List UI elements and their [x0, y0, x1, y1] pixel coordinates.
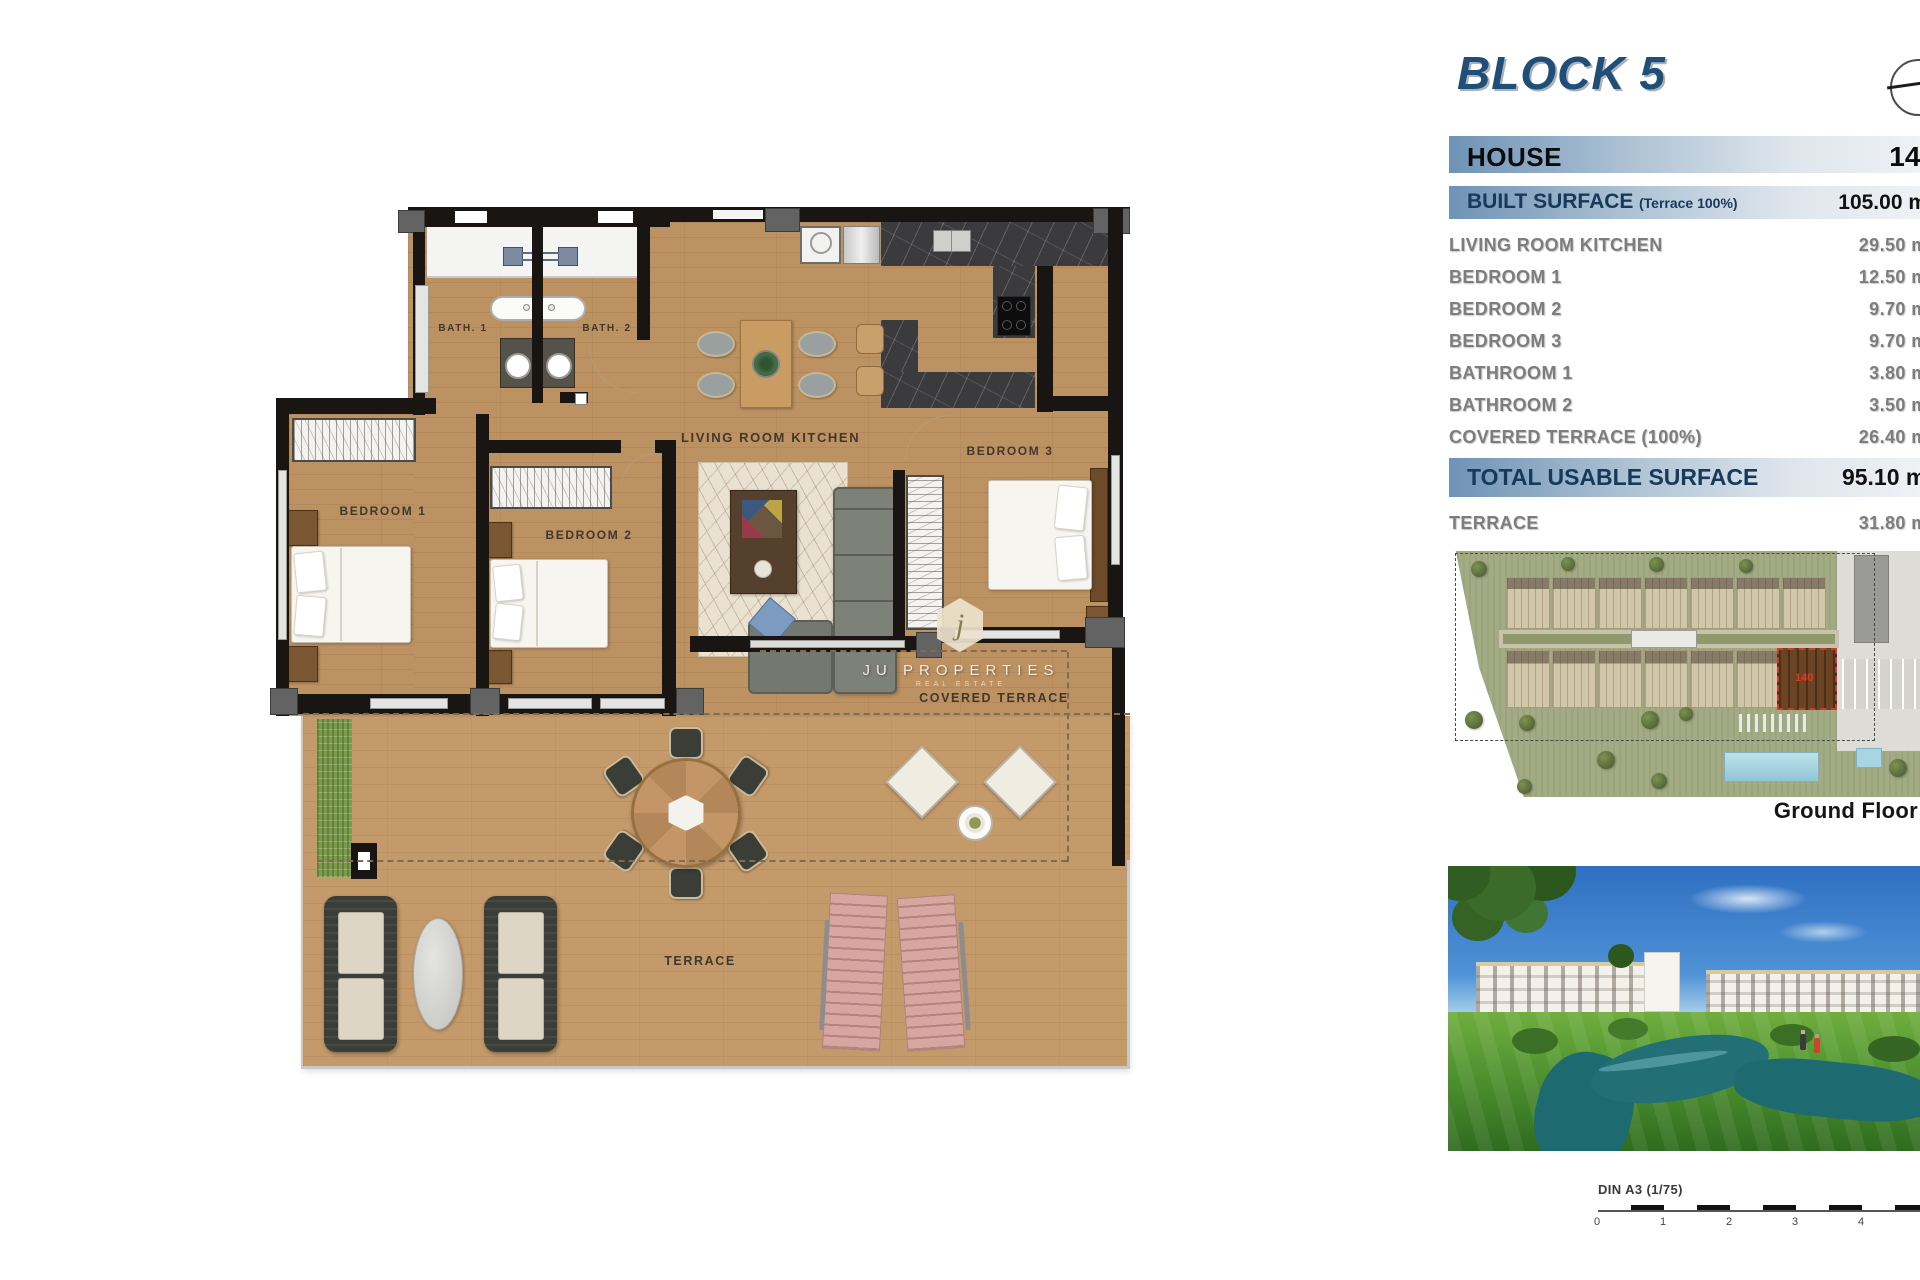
scale-bar-baseline	[1598, 1210, 1920, 1212]
sofa-cushion	[498, 978, 544, 1040]
house-header-bar: HOUSE 140	[1449, 136, 1920, 175]
scale-bar: DIN A3 (1/75) 0 1 2 3 4	[1598, 1182, 1920, 1232]
bath-counter-sink	[503, 247, 523, 266]
site-pool	[1724, 752, 1819, 782]
tree-icon	[1651, 773, 1667, 789]
garden-strip	[317, 719, 352, 877]
site-unit	[1736, 577, 1780, 629]
tub-faucet	[548, 304, 555, 311]
pillow	[1054, 535, 1088, 581]
basin-icon	[505, 353, 531, 379]
built-surface-label: BUILT SURFACE	[1467, 190, 1633, 214]
oval-coffee-table	[413, 918, 463, 1030]
row-label: BEDROOM 1	[1449, 267, 1562, 288]
window	[278, 470, 287, 640]
cloud	[1688, 884, 1808, 914]
wall	[637, 208, 650, 340]
tree-icon	[1471, 561, 1487, 577]
watermark-sub: REAL ESTATE	[861, 681, 1061, 688]
window	[508, 698, 592, 709]
nightstand	[286, 510, 318, 546]
kitchen-sink-icon	[933, 230, 971, 252]
surface-row: BEDROOM 3 9.70 m²	[1449, 325, 1920, 357]
table-decor	[742, 500, 782, 538]
wall	[532, 223, 543, 403]
surface-row: COVERED TERRACE (100%) 26.40 m²	[1449, 421, 1920, 453]
decor-dish	[754, 560, 772, 578]
window	[455, 211, 487, 223]
table-plate	[965, 813, 985, 833]
wall-pillar	[470, 688, 500, 715]
page-title: BLOCK 5	[1457, 46, 1777, 100]
golf-course-photo	[1448, 866, 1920, 1151]
wall-pillar	[398, 210, 425, 233]
site-unit	[1552, 650, 1596, 708]
brochure-page: BATH. 1 BATH. 2 LIVING ROOM KITCHEN BEDR…	[0, 0, 1920, 1280]
surface-row: BEDROOM 1 12.50 m²	[1449, 261, 1920, 293]
site-unit	[1644, 650, 1688, 708]
sliding-door	[750, 640, 905, 648]
surface-row: LIVING ROOM KITCHEN 29.50 m²	[1449, 229, 1920, 261]
covered-terrace-dashed-right	[1067, 652, 1069, 862]
room-label-bedroom2: BEDROOM 2	[539, 528, 639, 542]
outdoor-chair	[669, 727, 703, 759]
photo-bush	[1512, 1028, 1558, 1054]
row-label: BEDROOM 2	[1449, 299, 1562, 320]
window	[370, 698, 448, 709]
covered-terrace-dashed-bottom	[317, 860, 1067, 862]
wall	[893, 470, 905, 648]
blanket-fold	[536, 561, 538, 646]
floor-plan: BATH. 1 BATH. 2 LIVING ROOM KITCHEN BEDR…	[0, 0, 1140, 1090]
built-surface-sub: (Terrace 100%)	[1639, 195, 1738, 211]
scale-segment	[1763, 1205, 1796, 1210]
blanket-fold	[340, 548, 342, 641]
golfer-icon	[1814, 1038, 1820, 1053]
surface-row: BATHROOM 1 3.80 m²	[1449, 357, 1920, 389]
photo-tree	[1448, 866, 1490, 901]
room-label-living: LIVING ROOM KITCHEN	[681, 430, 841, 445]
watermark-name: JU PROPERTIES	[861, 662, 1061, 679]
bar-stool	[856, 366, 884, 396]
row-value: 12.50 m²	[1859, 267, 1920, 288]
room-label-bath2: BATH. 2	[567, 323, 647, 334]
built-surface-bar: BUILT SURFACE (Terrace 100%) 105.00 m²	[1449, 186, 1920, 219]
scale-tick: 4	[1858, 1216, 1864, 1228]
wall	[1108, 208, 1123, 648]
wardrobe-bedroom2	[490, 466, 612, 509]
row-value: 26.40 m²	[1859, 427, 1920, 448]
scale-segment	[1631, 1205, 1664, 1210]
dining-chair	[798, 372, 836, 398]
built-surface-value: 105.00 m²	[1838, 191, 1920, 215]
covered-terrace-dashed-top	[760, 650, 1067, 652]
wardrobe-bedroom3	[906, 475, 944, 630]
burner	[1002, 320, 1012, 330]
scale-bar-label: DIN A3 (1/75)	[1598, 1182, 1683, 1197]
room-label-covered-terrace: COVERED TERRACE	[914, 691, 1074, 705]
total-label: TOTAL USABLE SURFACE	[1467, 464, 1758, 491]
window	[598, 211, 633, 223]
site-plan-caption: Ground Floor	[1718, 798, 1918, 824]
sun-lounger	[897, 894, 966, 1052]
nightstand	[286, 646, 318, 682]
wall	[662, 440, 676, 716]
window	[600, 698, 665, 709]
basin-icon	[546, 353, 572, 379]
scale-tick: 2	[1726, 1216, 1732, 1228]
site-unit	[1690, 650, 1734, 708]
dining-chair	[697, 331, 735, 357]
sofa-cushion	[338, 912, 384, 974]
site-unit	[1644, 577, 1688, 629]
site-plan: 140	[1451, 551, 1920, 797]
row-label: BATHROOM 2	[1449, 395, 1573, 416]
row-value: 3.80 m²	[1869, 363, 1920, 384]
cloud	[1778, 921, 1868, 943]
row-value: 3.50 m²	[1869, 395, 1920, 416]
kitchen-sink-divider	[951, 231, 952, 251]
row-label: LIVING ROOM KITCHEN	[1449, 235, 1663, 256]
photo-building-tower	[1644, 952, 1680, 1012]
door-leaf	[575, 393, 587, 405]
washer-drum	[810, 232, 832, 254]
site-unit	[1598, 577, 1642, 629]
row-value: 29.50 m²	[1859, 235, 1920, 256]
tree-icon	[1517, 779, 1532, 794]
pillow	[293, 595, 326, 637]
terrace-row: TERRACE 31.80 m²	[1449, 507, 1920, 539]
photo-building-right	[1706, 970, 1920, 1016]
photo-bush	[1770, 1024, 1814, 1046]
row-label: BEDROOM 3	[1449, 331, 1562, 352]
wall	[276, 398, 436, 414]
site-unit	[1506, 650, 1550, 708]
amenity-loungers	[1739, 714, 1807, 732]
kitchen-island-horizontal	[881, 372, 1035, 408]
site-unit	[1782, 577, 1826, 629]
burner	[1016, 301, 1026, 311]
site-unit	[1506, 577, 1550, 629]
sofa-cushion	[498, 912, 544, 974]
sofa-cushion	[338, 978, 384, 1040]
photo-bush	[1868, 1036, 1920, 1062]
terrace-edge	[301, 716, 303, 1068]
scale-tick: 0	[1594, 1216, 1600, 1228]
scale-segment	[1829, 1205, 1862, 1210]
row-label: COVERED TERRACE (100%)	[1449, 427, 1702, 448]
wall-pillar	[765, 208, 800, 232]
headboard	[1090, 468, 1108, 602]
tree-icon	[1597, 751, 1615, 769]
sun-lounger	[822, 893, 888, 1052]
terrace-edge	[301, 1066, 1130, 1069]
outdoor-chair	[669, 867, 703, 899]
tub-faucet	[523, 304, 530, 311]
pillow	[492, 564, 524, 603]
terrace-edge	[1127, 860, 1130, 1069]
wall-pillar	[1085, 617, 1125, 648]
wall	[476, 414, 489, 716]
wall	[1037, 266, 1053, 412]
wall-pillar	[676, 688, 704, 715]
room-label-terrace: TERRACE	[650, 954, 750, 968]
tree-icon	[1561, 557, 1575, 571]
tree-icon	[1889, 759, 1907, 777]
scale-tick: 3	[1792, 1216, 1798, 1228]
wall	[476, 440, 621, 453]
window	[415, 285, 429, 393]
burner	[1002, 301, 1012, 311]
wall	[1112, 648, 1125, 866]
total-value: 95.10 m²	[1842, 464, 1920, 491]
site-unit	[1690, 577, 1734, 629]
dining-chair	[798, 331, 836, 357]
pillow	[293, 551, 327, 594]
site-unit-highlighted: 140	[1777, 648, 1837, 710]
scale-segment	[1697, 1205, 1730, 1210]
room-label-bedroom3: BEDROOM 3	[960, 444, 1060, 458]
total-surface-bar: TOTAL USABLE SURFACE 95.10 m²	[1449, 458, 1920, 497]
house-label: HOUSE	[1467, 142, 1562, 173]
photo-palm	[1608, 944, 1634, 968]
pillow	[492, 603, 524, 642]
highlighted-unit-number: 140	[1795, 672, 1813, 684]
dining-chair	[697, 372, 735, 398]
site-unit	[1552, 577, 1596, 629]
window	[713, 210, 763, 219]
golfer-icon	[1800, 1034, 1806, 1050]
tree-icon	[1465, 711, 1483, 729]
row-value: 9.70 m²	[1869, 331, 1920, 352]
tree-icon	[1641, 711, 1659, 729]
row-label: TERRACE	[1449, 513, 1539, 534]
fridge-icon	[843, 226, 880, 264]
wall-pillar	[270, 688, 298, 715]
house-value: 140	[1889, 141, 1920, 173]
burner	[1016, 320, 1026, 330]
site-pool-small	[1856, 748, 1882, 768]
table-plant	[752, 350, 780, 378]
photo-bush	[1608, 1018, 1648, 1040]
wardrobe-bedroom1	[292, 418, 416, 462]
tree-icon	[1739, 559, 1753, 573]
surface-row: BATHROOM 2 3.50 m²	[1449, 389, 1920, 421]
scale-tick: 1	[1660, 1216, 1666, 1228]
tree-icon	[1519, 715, 1535, 731]
room-label-bedroom1: BEDROOM 1	[333, 504, 433, 518]
tree-icon	[1649, 557, 1664, 572]
terrace-boundary-dashed	[303, 713, 1130, 715]
bath-counter-sink	[558, 247, 578, 266]
site-unit	[1598, 650, 1642, 708]
room-label-bath1: BATH. 1	[423, 323, 503, 334]
row-value: 9.70 m²	[1869, 299, 1920, 320]
surface-row: BEDROOM 2 9.70 m²	[1449, 293, 1920, 325]
site-unit	[1736, 650, 1780, 708]
scale-segment	[1895, 1205, 1920, 1210]
row-label: BATHROOM 1	[1449, 363, 1573, 384]
bar-stool	[856, 324, 884, 354]
pillow	[1054, 485, 1088, 532]
tree-icon	[1679, 707, 1693, 721]
window	[1111, 455, 1120, 565]
row-value: 31.80 m²	[1859, 513, 1920, 534]
watermark-initial: j	[956, 608, 964, 641]
photo-building-left	[1476, 962, 1662, 1014]
